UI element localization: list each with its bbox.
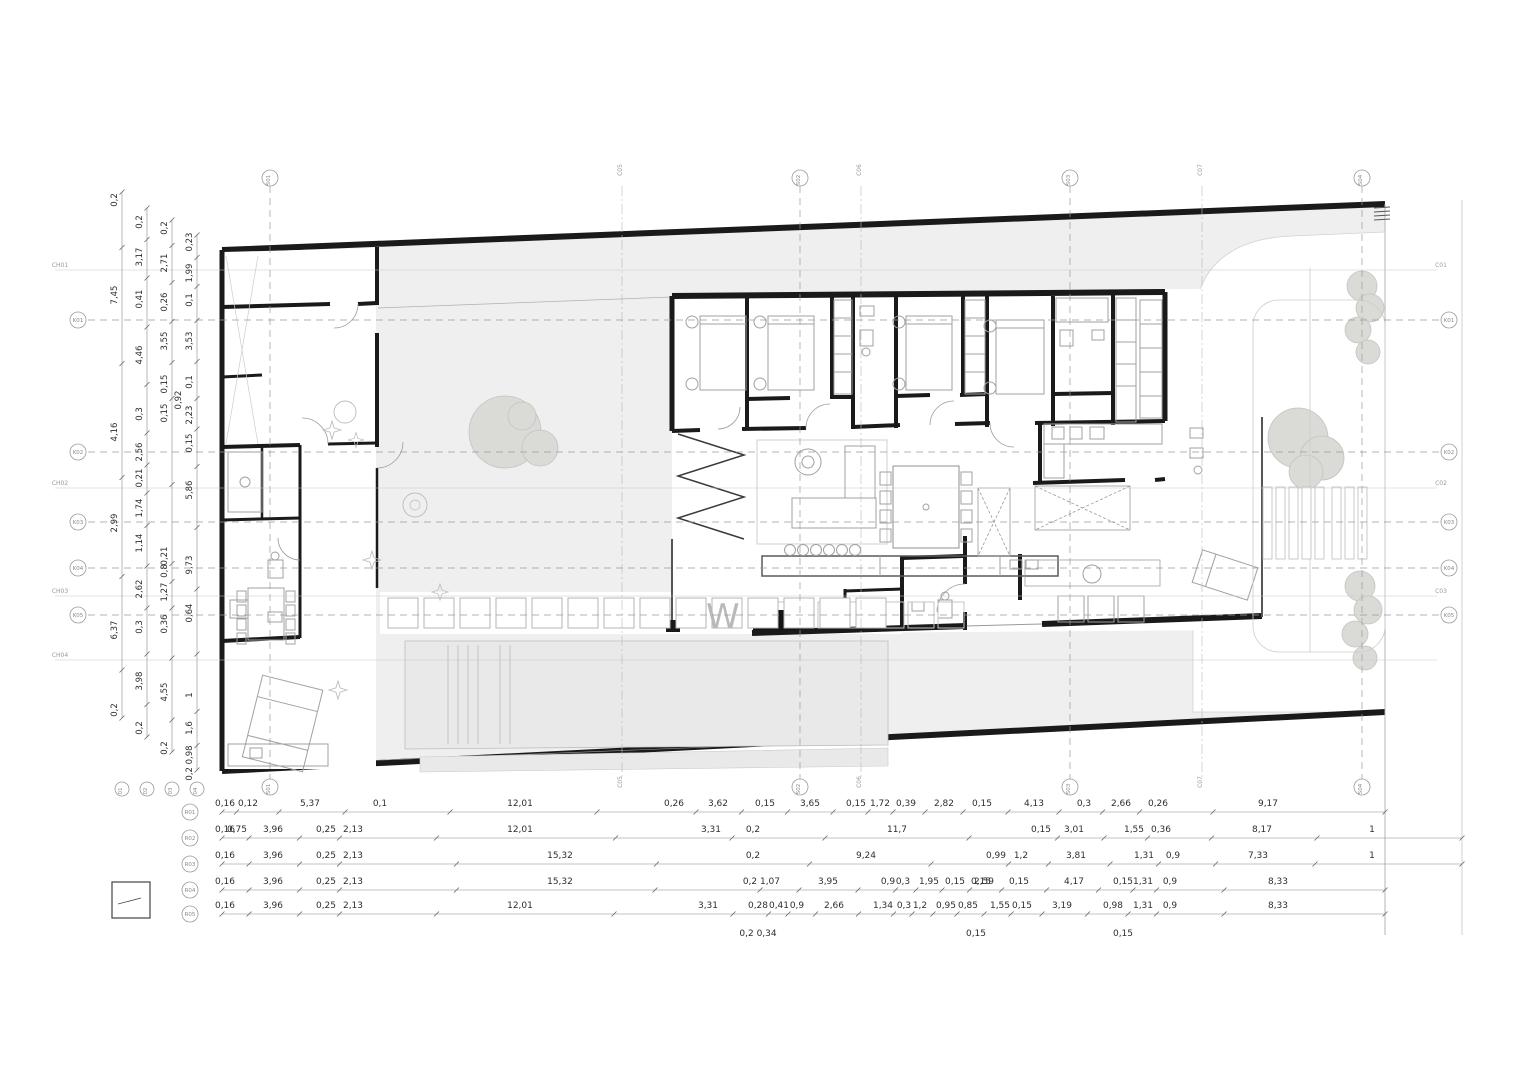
svg-text:1,74: 1,74	[135, 499, 145, 518]
svg-text:0,39: 0,39	[896, 799, 916, 809]
chain-bubble: 01	[115, 782, 129, 796]
grid-bubble: K04	[1441, 560, 1457, 576]
svg-text:3,17: 3,17	[135, 248, 145, 267]
drawing-sheet: W CH01CH02CH03CH04C01C02C03 S01S01S02S02…	[0, 0, 1527, 1080]
svg-text:1,72: 1,72	[870, 799, 890, 809]
svg-text:CH01: CH01	[52, 262, 69, 269]
svg-text:3,96: 3,96	[263, 851, 283, 861]
svg-text:0,3: 0,3	[897, 901, 911, 911]
svg-text:0,92: 0,92	[174, 391, 184, 410]
svg-text:C06: C06	[856, 164, 863, 176]
svg-text:11,7: 11,7	[887, 825, 907, 835]
svg-text:0,36: 0,36	[160, 615, 170, 634]
svg-text:1,14: 1,14	[135, 534, 145, 553]
svg-text:2,59: 2,59	[974, 877, 994, 887]
svg-text:8,17: 8,17	[1252, 825, 1272, 835]
svg-text:K02: K02	[1444, 450, 1455, 456]
svg-text:S04: S04	[1358, 174, 1364, 185]
svg-text:S01: S01	[266, 175, 272, 186]
svg-text:7,45: 7,45	[110, 286, 120, 305]
svg-text:0,1: 0,1	[185, 293, 195, 307]
svg-text:9,17: 9,17	[1258, 799, 1278, 809]
svg-text:0,15: 0,15	[966, 929, 986, 939]
svg-text:2,66: 2,66	[824, 901, 844, 911]
svg-text:K02: K02	[73, 450, 84, 456]
row-bubble: R05	[182, 906, 198, 922]
svg-text:0,9: 0,9	[881, 877, 896, 887]
svg-text:6,37: 6,37	[110, 621, 120, 640]
svg-text:0,3: 0,3	[896, 877, 910, 887]
svg-text:01: 01	[118, 788, 124, 795]
svg-text:2,13: 2,13	[343, 901, 363, 911]
svg-text:K03: K03	[73, 520, 84, 526]
svg-text:3,65: 3,65	[800, 799, 820, 809]
svg-text:7,33: 7,33	[1248, 851, 1268, 861]
svg-text:C02: C02	[1435, 480, 1447, 487]
svg-text:0,95: 0,95	[936, 901, 956, 911]
svg-text:5,37: 5,37	[300, 799, 320, 809]
svg-text:0,15: 0,15	[185, 434, 195, 453]
svg-text:3,62: 3,62	[708, 799, 728, 809]
svg-text:0,21: 0,21	[160, 547, 170, 566]
svg-text:K04: K04	[73, 566, 84, 572]
svg-text:R02: R02	[185, 836, 196, 842]
svg-text:0,15: 0,15	[755, 799, 775, 809]
grid-bubble: K01	[70, 312, 86, 328]
svg-text:3,98: 3,98	[135, 672, 145, 691]
svg-text:3,01: 3,01	[1064, 825, 1084, 835]
svg-text:0,2: 0,2	[746, 851, 760, 861]
watermark-w: W	[706, 597, 740, 637]
svg-text:3,96: 3,96	[263, 877, 283, 887]
svg-text:R01: R01	[185, 810, 196, 816]
svg-text:3,53: 3,53	[185, 332, 195, 351]
svg-text:0,15: 0,15	[1009, 877, 1029, 887]
svg-text:0,16: 0,16	[215, 877, 235, 887]
svg-text:0,25: 0,25	[316, 851, 336, 861]
svg-text:1,6: 1,6	[185, 721, 195, 735]
svg-text:R04: R04	[185, 888, 196, 894]
svg-text:S02: S02	[796, 784, 802, 795]
chain-bubble: 03	[165, 782, 179, 796]
svg-text:15,32: 15,32	[547, 877, 573, 887]
svg-text:1: 1	[1369, 825, 1375, 835]
svg-text:C03: C03	[1435, 588, 1447, 595]
svg-text:R05: R05	[185, 912, 196, 918]
svg-text:0,15: 0,15	[1012, 901, 1032, 911]
svg-text:3,31: 3,31	[701, 825, 721, 835]
svg-text:2,66: 2,66	[1111, 799, 1131, 809]
dimension-chains-left: 0,27,454,162,996,370,2010,23,170,414,460…	[110, 190, 204, 797]
svg-text:C07: C07	[1197, 776, 1204, 788]
svg-text:S03: S03	[1066, 783, 1072, 794]
svg-text:0,15: 0,15	[160, 404, 170, 423]
svg-text:03: 03	[168, 787, 174, 794]
grid-bubble: S02	[792, 170, 808, 186]
grid-bubble: S01	[262, 779, 278, 795]
svg-text:0,23: 0,23	[185, 233, 195, 252]
svg-text:0,9: 0,9	[1163, 901, 1178, 911]
svg-text:0,26: 0,26	[664, 799, 684, 809]
svg-text:CH02: CH02	[52, 480, 69, 487]
chain-bubble: 02	[140, 782, 154, 796]
svg-text:0,2: 0,2	[110, 193, 120, 207]
svg-text:0,9: 0,9	[1166, 851, 1181, 861]
svg-text:0,99: 0,99	[986, 851, 1006, 861]
svg-text:4,13: 4,13	[1024, 799, 1044, 809]
svg-text:0,85: 0,85	[958, 901, 978, 911]
row-bubble: R03	[182, 856, 198, 872]
svg-text:0,28: 0,28	[748, 901, 768, 911]
svg-text:CH03: CH03	[52, 588, 69, 595]
svg-text:0,2: 0,2	[135, 215, 145, 229]
svg-text:S03: S03	[1066, 174, 1072, 185]
svg-text:0,15: 0,15	[1031, 825, 1051, 835]
svg-text:0,64: 0,64	[185, 604, 195, 623]
grid-bubble: S04	[1354, 779, 1370, 795]
grid-bubble: S02	[792, 779, 808, 795]
svg-text:0,2: 0,2	[160, 741, 170, 755]
svg-text:3,55: 3,55	[160, 332, 170, 351]
svg-text:2,99: 2,99	[110, 514, 120, 533]
svg-text:1,34: 1,34	[873, 901, 893, 911]
svg-text:2,13: 2,13	[343, 825, 363, 835]
svg-text:9,24: 9,24	[856, 851, 876, 861]
svg-text:K03: K03	[1444, 520, 1455, 526]
svg-text:0,21: 0,21	[135, 469, 145, 488]
svg-text:0,2: 0,2	[135, 721, 145, 735]
svg-text:C05: C05	[617, 776, 624, 788]
svg-text:1: 1	[1369, 851, 1375, 861]
svg-text:12,01: 12,01	[507, 825, 533, 835]
svg-text:R03: R03	[185, 862, 196, 868]
grid-bubble: S04	[1354, 170, 1370, 186]
grid-bubble: S03	[1062, 779, 1078, 795]
svg-text:2,82: 2,82	[934, 799, 954, 809]
svg-text:3,96: 3,96	[263, 901, 283, 911]
svg-text:3,19: 3,19	[1052, 901, 1072, 911]
svg-text:2,13: 2,13	[343, 851, 363, 861]
svg-text:12,01: 12,01	[507, 901, 533, 911]
svg-text:15,32: 15,32	[547, 851, 573, 861]
svg-text:0,15: 0,15	[1113, 929, 1133, 939]
svg-text:0,41: 0,41	[769, 901, 789, 911]
svg-text:0,9: 0,9	[1163, 877, 1178, 887]
svg-text:1,07: 1,07	[760, 877, 780, 887]
planter-strips	[1263, 487, 1367, 559]
svg-text:S04: S04	[1358, 783, 1364, 794]
svg-text:0,15: 0,15	[972, 799, 992, 809]
grid-bubble: K02	[1441, 444, 1457, 460]
svg-text:1,27: 1,27	[160, 583, 170, 602]
svg-text:0,2: 0,2	[746, 825, 760, 835]
svg-text:0,15: 0,15	[945, 877, 965, 887]
grid-bubble: K03	[1441, 514, 1457, 530]
svg-text:K05: K05	[73, 613, 84, 619]
svg-text:0,98: 0,98	[1103, 901, 1123, 911]
svg-text:K01: K01	[1444, 318, 1455, 324]
row-bubble: R01	[182, 804, 198, 820]
svg-text:2,62: 2,62	[135, 580, 145, 599]
svg-text:9,73: 9,73	[185, 556, 195, 575]
grid-bubble: K04	[70, 560, 86, 576]
grid-bubble: S01	[262, 170, 278, 186]
floor-plan-canvas: W CH01CH02CH03CH04C01C02C03 S01S01S02S02…	[0, 0, 1527, 1080]
svg-text:K01: K01	[73, 318, 84, 324]
svg-text:0,9: 0,9	[790, 901, 805, 911]
svg-text:8,33: 8,33	[1268, 877, 1288, 887]
svg-text:0,26: 0,26	[1148, 799, 1168, 809]
grid-bubble: K05	[70, 607, 86, 623]
svg-text:2,23: 2,23	[185, 406, 195, 425]
svg-text:C05: C05	[617, 164, 624, 176]
svg-text:0,36: 0,36	[1151, 825, 1171, 835]
svg-text:3,31: 3,31	[698, 901, 718, 911]
svg-text:1,55: 1,55	[990, 901, 1010, 911]
svg-text:1,31: 1,31	[1133, 901, 1153, 911]
svg-text:0,3: 0,3	[135, 407, 145, 421]
svg-text:0,1: 0,1	[185, 375, 195, 389]
row-bubble: R02	[182, 830, 198, 846]
svg-text:3,96: 3,96	[263, 825, 283, 835]
svg-text:0,26: 0,26	[160, 293, 170, 312]
svg-text:C07: C07	[1197, 164, 1204, 176]
svg-text:0,2: 0,2	[110, 703, 120, 717]
svg-text:1,95: 1,95	[919, 877, 939, 887]
svg-text:1,2: 1,2	[913, 901, 927, 911]
svg-text:0,15: 0,15	[1113, 877, 1133, 887]
dimension-rows-bottom: 0,160,125,370,112,010,263,620,153,650,15…	[182, 799, 1465, 939]
svg-text:2,56: 2,56	[135, 443, 145, 462]
row-bubble: R04	[182, 882, 198, 898]
grid-bubble: K02	[70, 444, 86, 460]
svg-text:S01: S01	[266, 784, 272, 795]
grid-bubble: K03	[70, 514, 86, 530]
svg-text:0,3: 0,3	[135, 620, 145, 634]
svg-text:0,16: 0,16	[215, 825, 235, 835]
grid-bubble: K05	[1441, 607, 1457, 623]
svg-text:C01: C01	[1435, 262, 1447, 269]
svg-text:0,2: 0,2	[743, 877, 757, 887]
svg-text:0,3: 0,3	[1077, 799, 1091, 809]
svg-text:4,46: 4,46	[135, 346, 145, 365]
svg-text:K04: K04	[1444, 566, 1455, 572]
svg-text:4,17: 4,17	[1064, 877, 1084, 887]
svg-text:0,1: 0,1	[373, 799, 387, 809]
svg-text:K05: K05	[1444, 613, 1455, 619]
svg-text:C06: C06	[856, 776, 863, 788]
svg-text:3,95: 3,95	[818, 877, 838, 887]
svg-text:0,16: 0,16	[215, 851, 235, 861]
svg-text:0,25: 0,25	[316, 825, 336, 835]
svg-text:0,41: 0,41	[135, 290, 145, 309]
svg-text:8,33: 8,33	[1268, 901, 1288, 911]
svg-text:CH04: CH04	[52, 652, 69, 659]
svg-text:04: 04	[193, 787, 199, 794]
svg-text:4,16: 4,16	[110, 423, 120, 442]
svg-text:0,8: 0,8	[160, 564, 170, 578]
svg-text:1,99: 1,99	[185, 264, 195, 283]
svg-text:1,2: 1,2	[1014, 851, 1028, 861]
svg-text:12,01: 12,01	[507, 799, 533, 809]
svg-text:0,2: 0,2	[160, 221, 170, 235]
svg-text:0,15: 0,15	[846, 799, 866, 809]
svg-text:0,2 0,98: 0,2 0,98	[185, 745, 195, 780]
svg-text:2,13: 2,13	[343, 877, 363, 887]
svg-text:0,12: 0,12	[238, 799, 258, 809]
north-symbol	[112, 882, 150, 918]
svg-text:0,2 0,34: 0,2 0,34	[739, 929, 776, 939]
svg-text:0,25: 0,25	[316, 877, 336, 887]
svg-text:3,81: 3,81	[1066, 851, 1086, 861]
svg-text:1,31: 1,31	[1133, 877, 1153, 887]
grid-bubble: K01	[1441, 312, 1457, 328]
svg-text:1,31: 1,31	[1134, 851, 1154, 861]
svg-text:1,55: 1,55	[1124, 825, 1144, 835]
svg-text:5,86: 5,86	[185, 481, 195, 500]
chain-bubble: 04	[190, 782, 204, 796]
svg-text:0,16: 0,16	[215, 901, 235, 911]
svg-text:0,16: 0,16	[215, 799, 235, 809]
grid-bubble: S03	[1062, 170, 1078, 186]
svg-text:1: 1	[185, 692, 195, 697]
svg-text:4,55: 4,55	[160, 683, 170, 702]
svg-text:2,71: 2,71	[160, 254, 170, 273]
svg-text:02: 02	[143, 788, 149, 795]
svg-text:0,15: 0,15	[160, 375, 170, 394]
svg-text:S02: S02	[796, 175, 802, 186]
svg-text:0,25: 0,25	[316, 901, 336, 911]
